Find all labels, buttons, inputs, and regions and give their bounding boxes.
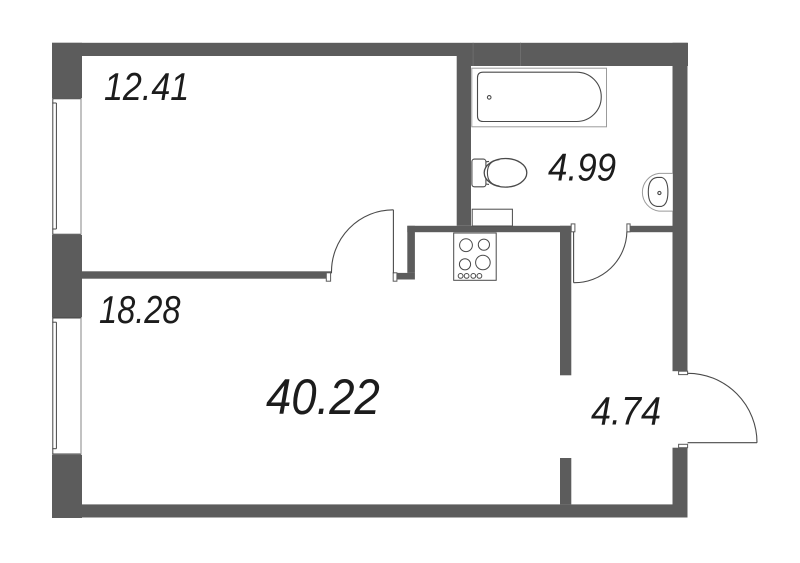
svg-text:4.74: 4.74 — [591, 390, 661, 434]
svg-text:18.28: 18.28 — [99, 288, 181, 331]
svg-text:40.22: 40.22 — [266, 370, 380, 425]
svg-text:4.99: 4.99 — [548, 146, 616, 189]
svg-text:12.41: 12.41 — [104, 65, 189, 108]
